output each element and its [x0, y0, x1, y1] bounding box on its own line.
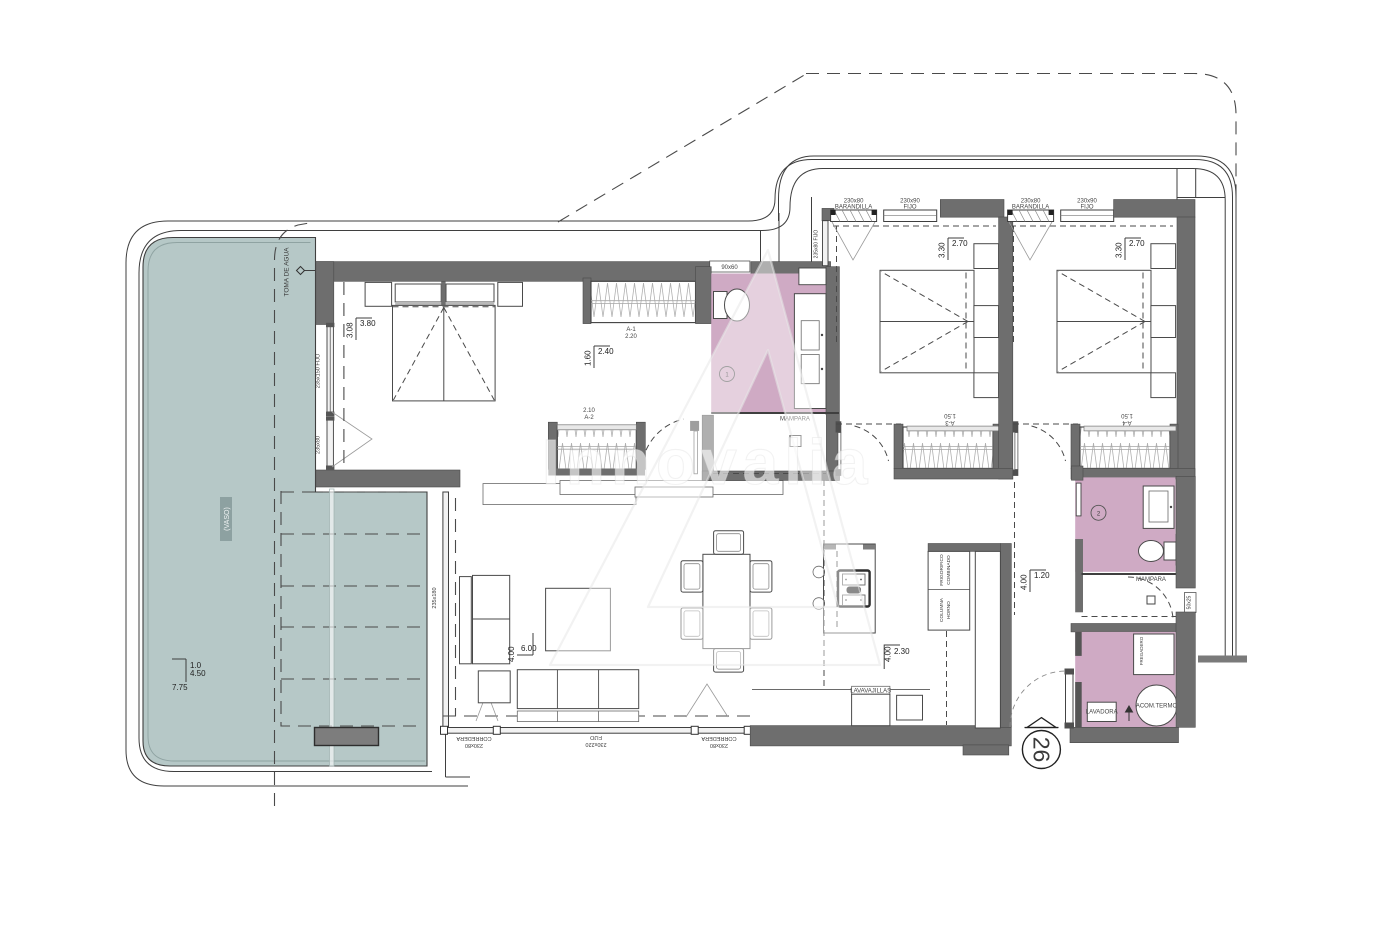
svg-text:MAMPARA: MAMPARA [1136, 577, 1166, 583]
svg-text:1.50: 1.50 [1121, 412, 1133, 418]
svg-text:2.40: 2.40 [598, 347, 614, 356]
svg-text:4.00: 4.00 [1020, 574, 1029, 590]
svg-text:LAVAVAJILLAS: LAVAVAJILLAS [850, 688, 891, 694]
svg-text:230x80: 230x80 [465, 742, 483, 748]
svg-text:TOMA DE AGUA: TOMA DE AGUA [284, 247, 291, 297]
svg-text:A-1: A-1 [626, 327, 636, 333]
svg-text:2.30: 2.30 [894, 647, 910, 656]
svg-text:FIJO: FIJO [589, 734, 602, 740]
svg-text:FREGADERO: FREGADERO [1139, 636, 1144, 665]
svg-text:A-2: A-2 [584, 415, 594, 421]
svg-text:4.50: 4.50 [190, 669, 206, 678]
svg-text:1.20: 1.20 [1034, 571, 1050, 580]
svg-text:COLUMNA: COLUMNA [939, 597, 945, 622]
svg-text:(VASO): (VASO) [224, 507, 231, 531]
svg-text:A-3: A-3 [945, 419, 955, 425]
svg-text:LAVADORA: LAVADORA [1086, 710, 1118, 716]
svg-text:ACOM.TERMO: ACOM.TERMO [1136, 704, 1178, 710]
svg-text:CORREDERA: CORREDERA [456, 735, 491, 741]
svg-text:2.70: 2.70 [952, 239, 968, 248]
svg-text:90x60: 90x60 [721, 265, 738, 271]
svg-text:BARANDILLA: BARANDILLA [835, 205, 872, 211]
svg-text:FIJO: FIJO [904, 205, 917, 211]
svg-text:1.50: 1.50 [944, 412, 956, 418]
svg-text:230x80: 230x80 [710, 742, 728, 748]
svg-text:50x25: 50x25 [1187, 595, 1193, 609]
svg-text:2.70: 2.70 [1129, 239, 1145, 248]
svg-text:FIJO: FIJO [1081, 205, 1094, 211]
svg-text:CORREDERA: CORREDERA [701, 735, 736, 741]
svg-text:26: 26 [1028, 737, 1054, 763]
svg-text:230x220: 230x220 [585, 741, 606, 747]
svg-text:2.20: 2.20 [625, 334, 637, 340]
svg-text:4.00: 4.00 [884, 646, 893, 662]
svg-text:BARANDILLA: BARANDILLA [1012, 205, 1049, 211]
svg-text:7.75: 7.75 [172, 683, 188, 692]
svg-text:235x180: 235x180 [432, 587, 438, 608]
svg-text:FRIGORIFICO: FRIGORIFICO [939, 554, 945, 586]
svg-text:HORNO: HORNO [946, 601, 952, 619]
svg-text:235x150 FIJO: 235x150 FIJO [316, 353, 322, 388]
svg-text:1.60: 1.60 [584, 350, 593, 366]
svg-text:A-4: A-4 [1122, 419, 1132, 425]
svg-text:4.00: 4.00 [507, 646, 516, 662]
svg-text:Innovalia: Innovalia [542, 426, 873, 498]
svg-text:3.80: 3.80 [360, 319, 376, 328]
svg-text:COMBINADO: COMBINADO [946, 555, 952, 585]
svg-text:6.00: 6.00 [521, 644, 537, 653]
svg-text:3.30: 3.30 [938, 242, 947, 258]
svg-text:3.08: 3.08 [346, 322, 355, 338]
svg-text:2.10: 2.10 [583, 408, 595, 414]
svg-text:235x80 FIJO: 235x80 FIJO [814, 230, 820, 259]
svg-text:3.30: 3.30 [1115, 242, 1124, 258]
svg-text:235x80: 235x80 [316, 436, 322, 454]
